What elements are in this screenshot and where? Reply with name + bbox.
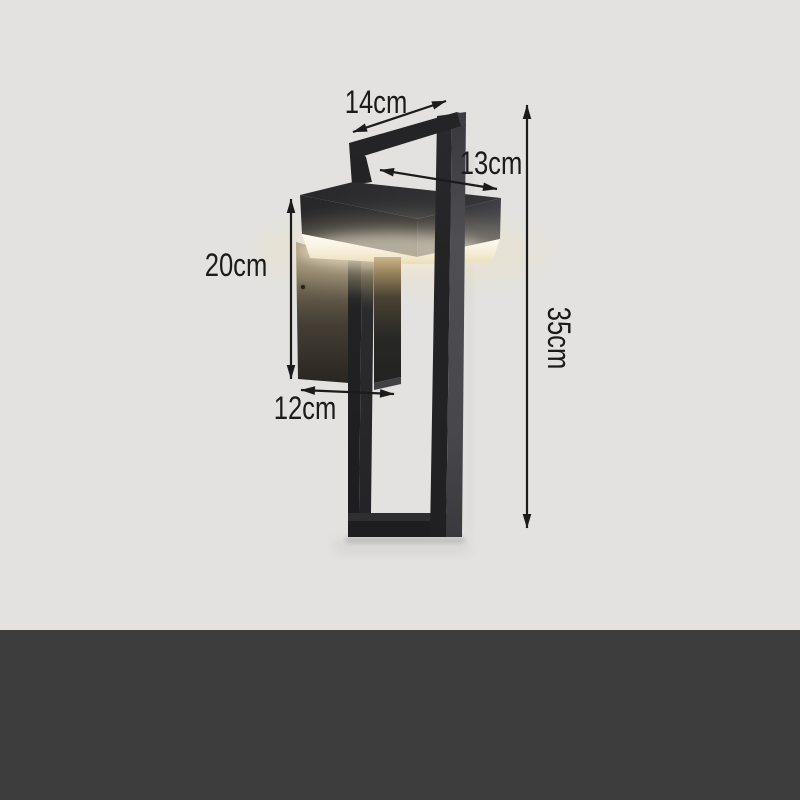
lamp-front-bar — [374, 257, 401, 383]
plate-screw-center — [301, 285, 305, 289]
dimension-label-wall-offset: 12cm — [274, 392, 337, 424]
dimension-label-top-width: 14cm — [345, 86, 408, 118]
shadow-under-frame-soft — [334, 539, 470, 553]
wall-lamp-illustration — [0, 0, 800, 800]
product-image-stage: 14cm 13cm 20cm 12cm 35cm — [0, 0, 800, 800]
dimension-label-head-depth: 13cm — [460, 147, 523, 179]
dimension-label-total-height: 35cm — [543, 307, 575, 370]
dimension-label-body-height: 20cm — [205, 249, 268, 281]
